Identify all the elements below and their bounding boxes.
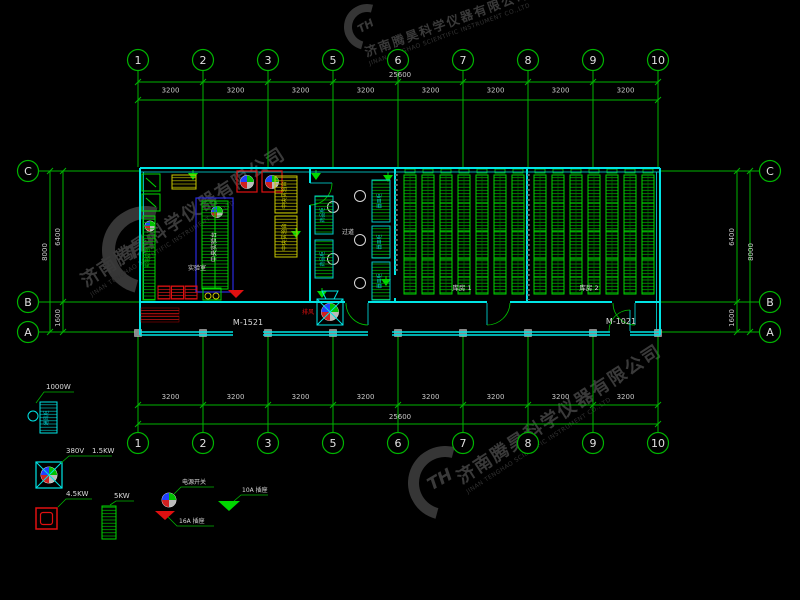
burner-icon-wedge [247,176,254,183]
dim-left-8000: 8000 [41,243,49,261]
cabinet-label: 器皿柜 [376,193,383,208]
grid-left-A-label: A [24,326,32,339]
door-label-m1521: M-1521 [233,318,263,327]
cabinet-label: 药品柜 [319,207,326,222]
cabinet-label: 器皿柜 [376,273,383,288]
dim-segment-top: 3200 [552,87,570,95]
cabinet-red [172,286,184,299]
left-lab-furniture [141,171,297,322]
plan-symbols [41,170,662,507]
door-label-m1021: M-1021 [606,317,636,326]
grid-left-B-label: B [24,296,32,309]
grid-top-2-label: 2 [200,54,207,67]
legend-switch-icon-wedge [169,493,176,500]
red-triangle-symbol [228,290,244,298]
dim-segment-top: 3200 [227,87,245,95]
grid-top-6-label: 6 [395,54,402,67]
dim-segment-top: 3200 [487,87,505,95]
grid-top-7-label: 7 [460,54,467,67]
grid-right-C-label: C [766,165,774,178]
reagent-shelf [172,175,196,189]
dim-left-6400: 6400 [54,228,62,246]
dim-segment-bottom: 3200 [162,393,180,401]
grid-top-5-label: 5 [330,54,337,67]
dim-segment-bottom: 3200 [617,393,635,401]
grid-bottom-5-label: 5 [330,437,337,450]
legend-socket-16a-icon [155,511,175,520]
legend-1000w: 1000W [46,383,71,391]
stool-circle [355,191,366,202]
room-label-storage1: 库房 1 [452,283,471,292]
bench-label-yellow: 中央实验台 [280,181,288,209]
grid-top-9-label: 9 [590,54,597,67]
dim-left-1600: 1600 [54,309,62,327]
legend-switch-icon-wedge [162,493,169,500]
grid-top-10-label: 10 [651,54,665,67]
legend-5kw: 5KW [114,492,130,500]
dim-segment-top: 3200 [422,87,440,95]
bench-label-central: 中央实验台 [210,232,218,262]
legend-fume-circle [28,411,38,421]
dim-segment-bottom: 3200 [357,393,375,401]
bench-label-yellow: 中央实验台 [280,223,288,251]
legend-red-square [36,508,57,529]
burner-icon-wedge [266,176,273,183]
legend-fume-label: 通风柜 [43,410,50,425]
plan-texts: M-1521 M-1021 实验室 过道 库房 1 库房 2 中央实验台 中央实… [43,181,636,525]
cabinet-red [158,286,170,299]
burner-icon-wedge [241,176,248,183]
burner-icon-wedge [247,182,254,189]
legend-switch-label: 电源开关 [182,478,206,486]
grid-right-A-label: A [766,326,774,339]
red-annotation [141,316,179,322]
bench-label-side: 实验边台 [144,248,151,268]
grid-bottom-6-label: 6 [395,437,402,450]
legend-16a-label: 16A 插座 [179,517,205,525]
dim-right-6400: 6400 [728,228,736,246]
dim-segment-bottom: 3200 [292,393,310,401]
dim-segment-top: 3200 [357,87,375,95]
cabinet-label: 药品柜 [319,251,326,266]
grid-bottom-1-label: 1 [135,437,142,450]
grid-bottom-10-label: 10 [651,437,665,450]
cabinet-label: 器皿柜 [376,234,383,249]
grid-top-8-label: 8 [525,54,532,67]
legend-green-cabinet [102,506,116,539]
legend-switch-icon-wedge [169,500,176,507]
legend-1-5kw: 1.5KW [92,447,114,455]
dim-right-8000: 8000 [747,243,755,261]
dim-segment-bottom: 3200 [227,393,245,401]
fan-label: 排风 [302,308,314,316]
dim-right-1600: 1600 [728,309,736,327]
dim-segment-top: 3200 [162,87,180,95]
burner-icon-wedge [266,182,273,189]
door-swings [310,183,635,331]
legend [28,392,268,539]
stool-circle [355,235,366,246]
dim-total-top: 25600 [389,71,411,79]
grid-top-1-label: 1 [135,54,142,67]
grid-bottom-7-label: 7 [460,437,467,450]
grid-bottom-3-label: 3 [265,437,272,450]
legend-socket-10a-icon [218,501,240,511]
stool-circle [355,278,366,289]
legend-380v: 380V [66,447,84,455]
grid-bottom-9-label: 9 [590,437,597,450]
room-label-lab: 实验室 [188,264,206,272]
dim-segment-bottom: 3200 [422,393,440,401]
dim-segment-bottom: 3200 [552,393,570,401]
room-label-storage2: 库房 2 [579,283,598,292]
dim-segment-bottom: 3200 [487,393,505,401]
diffuser-icon [311,173,321,180]
red-annotation [141,308,179,314]
grid-system: 1122335566778899101032003200320032003200… [18,50,781,454]
legend-switch-icon-wedge [162,500,169,507]
dim-segment-top: 3200 [292,87,310,95]
room-label-corridor: 过道 [342,228,354,236]
floor-plan-drawing: 1122335566778899101032003200320032003200… [0,0,800,600]
grid-bottom-2-label: 2 [200,437,207,450]
burner-icon-wedge [241,182,248,189]
grid-top-3-label: 3 [265,54,272,67]
grid-bottom-8-label: 8 [525,437,532,450]
cad-canvas: TH 济南腾昊科学仪器有限公司 JINAN TENGHAO SCIENTIFIC… [0,0,800,600]
dim-segment-top: 3200 [617,87,635,95]
dim-total-bottom: 25600 [389,413,411,421]
legend-10a-label: 10A 插座 [242,486,268,494]
grid-right-B-label: B [766,296,774,309]
grid-left-C-label: C [24,165,32,178]
legend-4-5kw: 4.5KW [66,490,88,498]
cabinet-red [185,286,197,299]
